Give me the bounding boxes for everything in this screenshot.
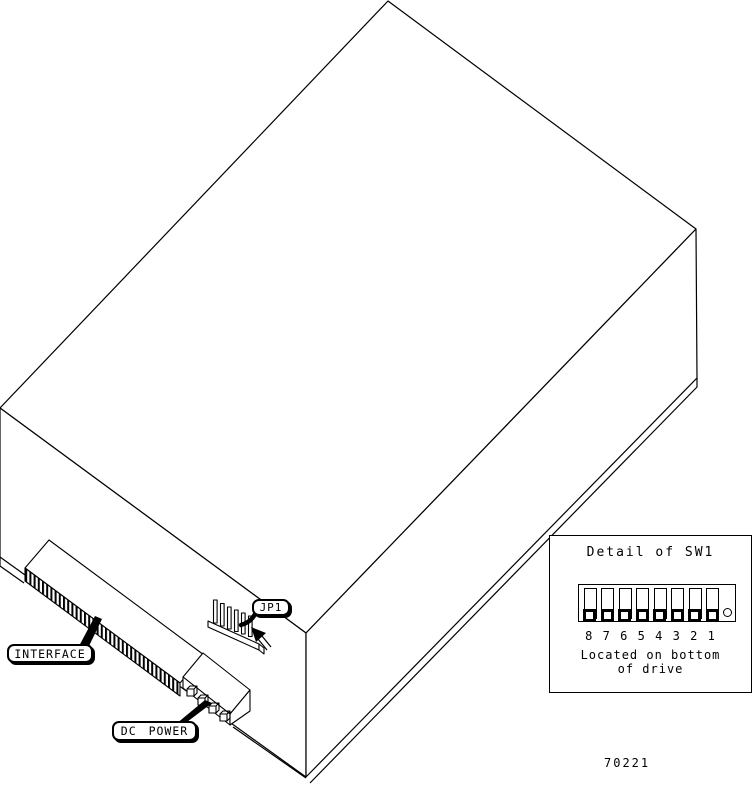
- switch-number: 2: [685, 629, 703, 643]
- switch-number: 8: [580, 629, 598, 643]
- dip-switch-6-knob: [618, 609, 631, 622]
- dip-switch-4: [654, 588, 667, 619]
- dip-switch-1: [706, 588, 719, 619]
- detail-caption-line2: of drive: [550, 662, 751, 676]
- dip-switch-pin1-marker-icon: [723, 608, 732, 617]
- dip-switch-8: [584, 588, 597, 619]
- jp1-pin: [228, 607, 232, 629]
- dip-switch-2: [689, 588, 702, 619]
- dc-power-callout-text: DC POWER: [121, 724, 188, 738]
- dip-switch-4-knob: [653, 609, 666, 622]
- switch-number: 1: [703, 629, 721, 643]
- dip-switch-7-knob: [601, 609, 614, 622]
- dip-switch-7: [601, 588, 614, 619]
- sw1-detail-panel: Detail of SW1 8 7 6 5 4 3 2 1 Located on…: [549, 535, 752, 693]
- dip-switch-8-knob: [583, 609, 596, 622]
- switch-number: 4: [650, 629, 668, 643]
- dip-switch-3: [671, 588, 684, 619]
- interface-callout-text: INTERFACE: [14, 647, 85, 661]
- dip-switch-1-knob: [706, 609, 719, 622]
- dip-switch-3-knob: [671, 609, 684, 622]
- dc-power-callout-label: DC POWER: [112, 721, 197, 741]
- interface-callout-label: INTERFACE: [7, 644, 93, 663]
- jp1-callout-label: JP1: [252, 599, 290, 616]
- dip-switch-2-knob: [688, 609, 701, 622]
- dip-switch-6: [619, 588, 632, 619]
- switch-number: 5: [633, 629, 651, 643]
- jp1-pin: [214, 600, 218, 623]
- jp1-pin: [221, 604, 225, 627]
- switch-number: 7: [598, 629, 616, 643]
- dip-switch-sw1: [578, 584, 736, 622]
- technical-illustration: INTERFACE DC POWER JP1 Detail of SW1 8 7…: [0, 0, 755, 787]
- switch-number: 6: [615, 629, 633, 643]
- dip-switch-5: [636, 588, 649, 619]
- switch-number: 3: [668, 629, 686, 643]
- jp1-pin: [235, 610, 239, 632]
- jp1-callout-text: JP1: [260, 601, 283, 614]
- dip-switch-numbers: 8 7 6 5 4 3 2 1: [580, 629, 720, 643]
- detail-caption-line1: Located on bottom: [550, 648, 751, 662]
- figure-number: 70221: [604, 756, 650, 770]
- dip-switch-5-knob: [636, 609, 649, 622]
- detail-panel-title: Detail of SW1: [550, 545, 751, 560]
